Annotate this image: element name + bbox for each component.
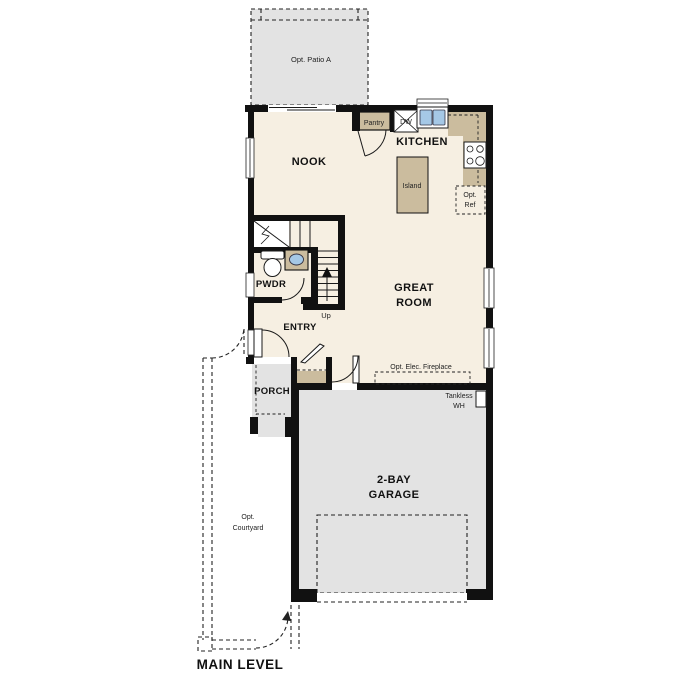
- wall-garage-corner-se: [466, 589, 493, 600]
- porch: PORCH: [250, 364, 297, 437]
- opt-patio: Opt. Patio A: [251, 9, 368, 105]
- window-greatroom-east-2: [484, 328, 494, 368]
- ref-label-2: Ref: [465, 202, 476, 209]
- garage-label-1: 2-BAY: [377, 474, 411, 486]
- wall-pwdr-post: [301, 297, 311, 304]
- tankless-label-1: Tankless: [445, 393, 473, 400]
- wall-stair-north: [253, 215, 345, 221]
- wall-pantry-west: [352, 105, 360, 131]
- courtyard-south-fence: [212, 640, 256, 649]
- front-door-opening: [254, 357, 291, 364]
- courtyard-west-fence: [203, 358, 212, 640]
- fireplace-label: Opt. Elec. Fireplace: [390, 364, 452, 371]
- patio-label: Opt. Patio A: [291, 55, 331, 64]
- garage-label-2: GARAGE: [369, 489, 420, 501]
- wall-stair-east: [338, 215, 345, 310]
- wall-stair-south: [303, 304, 345, 310]
- wall-entry-south-left: [246, 357, 254, 364]
- courtyard-label-1: Opt.: [241, 514, 254, 521]
- garage: 2-BAY GARAGE Tankless WH: [299, 390, 486, 593]
- sliding-door-opening: [268, 105, 336, 112]
- courtyard-gate-arc-top: [212, 328, 244, 358]
- entry-label: ENTRY: [283, 322, 317, 333]
- window-entry-sidelite: [248, 330, 254, 355]
- porch-step: [258, 417, 285, 437]
- wall-garage-west: [291, 387, 299, 602]
- ref-label-1: Opt.: [463, 192, 476, 199]
- floor-plan: Opt. Patio A Opt. Courtyard PORCH 2-BAY …: [0, 0, 687, 687]
- great-room-label-1: GREAT: [394, 282, 434, 294]
- wall-pwdr-south: [253, 297, 282, 303]
- great-room-label-2: ROOM: [396, 297, 432, 309]
- courtyard-east-fence: [291, 605, 299, 649]
- porch-label: PORCH: [254, 386, 290, 397]
- island-label: Island: [403, 183, 422, 190]
- courtyard-gate-arrow: [282, 611, 291, 621]
- courtyard-gate-arc-bottom: [256, 616, 288, 648]
- wall-stair-inner: [311, 248, 318, 306]
- tankless-label-2: WH: [453, 403, 465, 410]
- floor-plan-page: Opt. Patio A Opt. Courtyard PORCH 2-BAY …: [0, 0, 687, 687]
- level-title: MAIN LEVEL: [197, 657, 284, 672]
- kitchen-label: KITCHEN: [396, 136, 448, 148]
- dishwasher-label: DW: [400, 119, 412, 126]
- pwdr-label: PWDR: [256, 279, 286, 290]
- garage-entry-opening: [332, 383, 357, 390]
- pantry-label: Pantry: [364, 120, 385, 127]
- powder-sink: [285, 250, 308, 270]
- courtyard-post: [198, 637, 212, 651]
- window-pwdr-west: [246, 273, 254, 297]
- window-greatroom-east-1: [484, 268, 494, 308]
- tankless-water-heater: [476, 391, 486, 407]
- up-label: Up: [321, 311, 331, 320]
- dishwasher: DW: [394, 110, 418, 132]
- kitchen-sink: [417, 107, 448, 128]
- courtyard-label-2: Courtyard: [233, 525, 264, 532]
- window-nook-west: [246, 138, 254, 178]
- nook-label: NOOK: [292, 156, 327, 168]
- wall-garage-corner-sw: [291, 589, 317, 602]
- wall-garage-north: [291, 383, 493, 390]
- range: [464, 142, 486, 168]
- window-kitchen-sink: [417, 99, 448, 107]
- garage-overhead-door-opening: [317, 593, 467, 600]
- porch-post-left: [250, 417, 258, 434]
